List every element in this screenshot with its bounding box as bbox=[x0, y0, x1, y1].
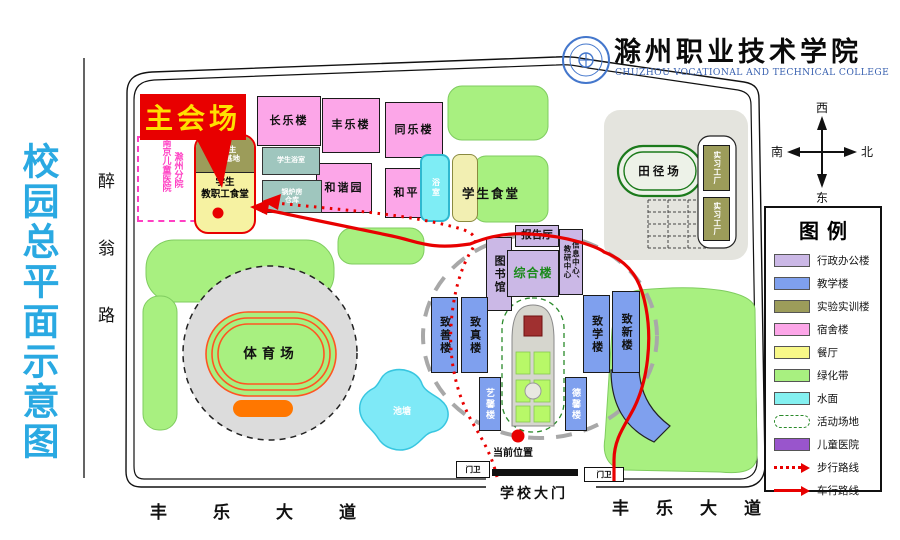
legend-swatch bbox=[774, 254, 810, 267]
legend-label: 宿舍楼 bbox=[817, 322, 849, 337]
building-tongle: 同乐楼 bbox=[385, 102, 443, 158]
staff-canteen-label: 学生 教职工食堂 bbox=[196, 177, 254, 201]
plaza-gardens bbox=[516, 352, 550, 422]
guard-booth-right: 门卫 bbox=[584, 467, 624, 482]
west-road-label: 醉翁路 bbox=[92, 172, 117, 373]
staff-canteen-line1: 学生 bbox=[196, 177, 254, 189]
plaza-dashed-border bbox=[502, 298, 564, 432]
building-zhixue: 致学楼 bbox=[583, 295, 610, 373]
building-zhishan: 致善楼 bbox=[431, 297, 458, 373]
legend-label: 车行路线 bbox=[817, 483, 859, 498]
main-venue-callout: 主会场 bbox=[140, 94, 246, 140]
legend-swatch bbox=[774, 277, 810, 290]
legend-label: 行政办公楼 bbox=[817, 253, 870, 268]
stadium-track-lane bbox=[212, 318, 330, 390]
south-road-label-right: 丰乐大道 bbox=[612, 494, 788, 519]
compass-east: 东 bbox=[816, 191, 828, 205]
info-center-label: 信息中心、教研中心 bbox=[563, 239, 580, 285]
compass-west: 西 bbox=[816, 101, 828, 115]
legend-label: 餐厅 bbox=[817, 345, 838, 360]
legend-label: 实验实训楼 bbox=[817, 299, 870, 314]
boiler-line1: 锅炉房 bbox=[282, 189, 303, 197]
legend-swatch bbox=[774, 346, 810, 359]
track-oval-inner bbox=[624, 152, 696, 190]
stadium-label: 体育场 bbox=[243, 345, 299, 361]
track-field-label: 田径场 bbox=[638, 164, 682, 178]
building-shower: 浴室 bbox=[420, 154, 450, 222]
courts-grid bbox=[648, 200, 708, 248]
plaza-fountain bbox=[525, 383, 541, 399]
campus-map: 体育场 池塘 田径场 bbox=[0, 0, 900, 540]
current-location-dot bbox=[512, 430, 525, 443]
legend-swatch bbox=[774, 392, 810, 405]
staff-canteen-compound: 大学生 孵化基地 学生 教职工食堂 bbox=[194, 134, 256, 234]
building-zhizhen: 致真楼 bbox=[461, 297, 488, 373]
building-workshop-b: 实习工厂 bbox=[703, 197, 730, 241]
legend-row-8: 儿童医院 bbox=[766, 433, 880, 456]
plaza-monument bbox=[524, 316, 542, 336]
building-zhixin: 致新楼 bbox=[612, 291, 640, 373]
legend-label: 儿童医院 bbox=[817, 437, 859, 452]
legend-swatch bbox=[774, 300, 810, 313]
building-changle: 长乐楼 bbox=[257, 96, 321, 146]
legend-label: 步行路线 bbox=[817, 460, 859, 475]
legend-row-4: 餐厅 bbox=[766, 341, 880, 364]
legend-solid-arrow bbox=[774, 486, 810, 496]
pond bbox=[360, 370, 448, 450]
stadium-track bbox=[206, 312, 336, 396]
building-complex: 综合楼 bbox=[507, 250, 559, 297]
compass-north: 北 bbox=[861, 145, 873, 159]
legend-row-9: 步行路线 bbox=[766, 456, 880, 479]
legend-title: 图例 bbox=[774, 215, 880, 244]
staff-canteen-line2: 教职工食堂 bbox=[196, 189, 254, 201]
building-fengle: 丰乐楼 bbox=[322, 98, 380, 153]
college-name-en: CHUZHOU VOCATIONAL AND TECHNICAL COLLEGE bbox=[615, 67, 891, 78]
stadium-track-lane2 bbox=[218, 324, 324, 384]
incubator-line2: 孵化基地 bbox=[210, 154, 240, 163]
incubator-building: 大学生 孵化基地 bbox=[196, 136, 254, 173]
legend-row-7: 活动场地 bbox=[766, 410, 880, 433]
building-workshop-a: 实习工厂 bbox=[703, 145, 730, 191]
legend-dashed-outline bbox=[774, 415, 810, 428]
guard-booth-left: 门卫 bbox=[456, 461, 490, 478]
legend-row-0: 行政办公楼 bbox=[766, 249, 880, 272]
college-name: 滁州职业技术学院 bbox=[614, 30, 890, 69]
legend-label: 活动场地 bbox=[817, 414, 859, 429]
hospital-name-col1: 南京儿童医院 bbox=[162, 138, 171, 220]
boiler-line2: 仓库 bbox=[285, 197, 299, 205]
gate-bar bbox=[492, 469, 578, 476]
pond-label: 池塘 bbox=[393, 405, 411, 416]
south-road-label-left: 丰乐大道 bbox=[150, 498, 402, 523]
plaza-building bbox=[512, 305, 554, 426]
compass-south: 南 bbox=[771, 144, 783, 159]
stadium-circle bbox=[183, 266, 357, 440]
legend-row-2: 实验实训楼 bbox=[766, 295, 880, 318]
legend-row-6: 水面 bbox=[766, 387, 880, 410]
page-title: 校园总平面示意图 bbox=[10, 142, 64, 462]
legend: 图例 行政办公楼教学楼实验实训楼宿舍楼餐厅绿化带水面活动场地儿童医院步行路线车行… bbox=[764, 206, 882, 492]
legend-swatch bbox=[774, 323, 810, 336]
stadium-stand bbox=[233, 400, 293, 417]
legend-label: 绿化带 bbox=[817, 368, 849, 383]
legend-swatch bbox=[774, 438, 810, 451]
college-logo bbox=[563, 37, 609, 83]
legend-label: 教学楼 bbox=[817, 276, 849, 291]
legend-items: 行政办公楼教学楼实验实训楼宿舍楼餐厅绿化带水面活动场地儿童医院步行路线车行路线 bbox=[766, 249, 880, 502]
building-bathhouse: 学生浴室 bbox=[262, 147, 320, 175]
building-dexin: 德馨楼 bbox=[565, 377, 587, 431]
legend-row-10: 车行路线 bbox=[766, 479, 880, 502]
current-location-label: 当前位置 bbox=[493, 444, 533, 459]
legend-row-5: 绿化带 bbox=[766, 364, 880, 387]
legend-dotted-arrow bbox=[774, 463, 810, 473]
hospital-name-col2: 滁州分院 bbox=[174, 138, 183, 220]
building-lecture-hall: 报告厅 bbox=[515, 225, 559, 247]
student-canteen-label: 学生食堂 bbox=[462, 183, 520, 202]
zhixin-curve bbox=[611, 370, 670, 442]
legend-label: 水面 bbox=[817, 391, 838, 406]
building-info-center: 信息中心、教研中心 bbox=[559, 229, 583, 295]
building-yixin: 艺馨楼 bbox=[479, 377, 501, 431]
compass: 西 东 南 北 bbox=[771, 101, 873, 205]
building-hexie: 和谐园 bbox=[316, 163, 372, 213]
legend-swatch bbox=[774, 369, 810, 382]
incubator-line1: 大学生 bbox=[214, 145, 237, 154]
legend-row-3: 宿舍楼 bbox=[766, 318, 880, 341]
building-boiler: 锅炉房 仓库 bbox=[262, 180, 322, 213]
legend-row-1: 教学楼 bbox=[766, 272, 880, 295]
school-gate-label: 学校大门 bbox=[500, 483, 568, 503]
track-oval bbox=[618, 146, 702, 196]
